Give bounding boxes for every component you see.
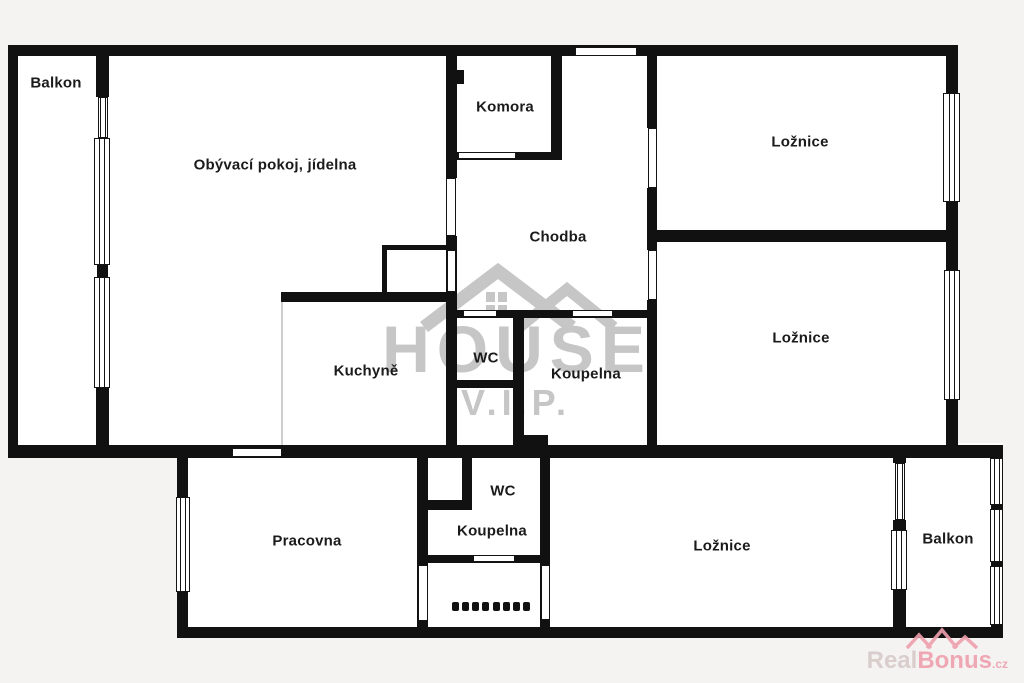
dash-icon xyxy=(482,602,489,611)
wall xyxy=(647,230,958,242)
door-opening xyxy=(418,565,428,621)
room-label-balkon-bottom: Balkon xyxy=(922,531,973,548)
window-symbol xyxy=(990,509,1003,562)
entrance-door xyxy=(575,47,637,56)
floor-plan: HOUSE V.I.P. xyxy=(0,0,1024,683)
room-label-komora: Komora xyxy=(476,99,534,116)
door-opening xyxy=(463,310,497,317)
wall xyxy=(427,500,472,510)
closet-wall xyxy=(382,245,448,250)
wall xyxy=(96,55,109,97)
balcony-window-symbol xyxy=(94,277,110,388)
logo-part-bonus: Bonus xyxy=(917,647,992,674)
dash-icon xyxy=(503,602,510,611)
wall xyxy=(96,388,109,445)
wall xyxy=(8,45,958,56)
logo-part-real: Real xyxy=(867,647,918,674)
realbonus-logo-text: RealBonus.cz xyxy=(867,647,1008,675)
window-symbol xyxy=(990,458,1003,505)
room-label-wc-lower: WC xyxy=(490,483,515,500)
dash-icon xyxy=(513,602,520,611)
room-label-koupelna-upper: Koupelna xyxy=(551,366,621,383)
balcony-door-symbol xyxy=(891,530,907,590)
wall xyxy=(455,70,464,84)
window-symbol xyxy=(990,566,1003,625)
room-label-wc-upper: WC xyxy=(473,350,498,367)
dash-icon xyxy=(462,602,469,611)
window-symbol xyxy=(943,93,960,202)
room-label-balkon-top: Balkon xyxy=(30,75,81,92)
door-opening xyxy=(232,448,282,457)
wall xyxy=(177,445,188,497)
door-opening xyxy=(458,152,516,159)
door-opening xyxy=(648,250,657,300)
wall xyxy=(281,292,457,302)
dash-icon xyxy=(472,602,479,611)
dashed-marker-row xyxy=(452,601,530,611)
wall xyxy=(8,45,18,458)
wall xyxy=(647,55,657,128)
wall xyxy=(513,310,524,445)
door-opening xyxy=(473,555,515,562)
wall xyxy=(524,435,548,445)
door-opening xyxy=(541,565,550,620)
wall xyxy=(446,302,457,445)
wall xyxy=(97,265,108,277)
room-label-loznice-mid: Ložnice xyxy=(772,330,829,347)
window-symbol xyxy=(944,270,960,400)
dash-icon xyxy=(523,602,530,611)
room-label-obyvaci-pokoj: Obývací pokoj, jídelna xyxy=(194,157,357,174)
door-opening xyxy=(572,310,613,317)
room-label-kuchyne: Kuchyně xyxy=(334,363,399,380)
wall xyxy=(446,160,457,178)
wall xyxy=(177,445,1003,458)
dash-icon xyxy=(493,602,500,611)
kitchen-open-boundary xyxy=(281,302,283,445)
balcony-window-symbol xyxy=(98,97,108,138)
wall xyxy=(457,380,513,388)
closet-opening xyxy=(447,250,456,292)
balcony-window-symbol xyxy=(895,463,905,520)
dash-icon xyxy=(452,602,459,611)
realbonus-roofs-icon xyxy=(906,627,978,649)
wall xyxy=(893,520,906,530)
room-label-chodba: Chodba xyxy=(529,229,586,246)
room-label-loznice-bottom: Ložnice xyxy=(693,538,750,555)
wall xyxy=(647,300,657,445)
window-symbol xyxy=(176,497,190,592)
logo-suffix-cz: .cz xyxy=(992,657,1008,671)
balcony-door-symbol xyxy=(94,138,110,265)
door-opening xyxy=(446,178,456,236)
realbonus-logo: RealBonus.cz xyxy=(860,627,1010,677)
room-label-pracovna: Pracovna xyxy=(272,533,341,550)
wall xyxy=(893,445,906,463)
wall xyxy=(551,55,562,160)
room-label-koupelna-lower: Koupelna xyxy=(457,523,527,540)
room-label-loznice-top: Ložnice xyxy=(771,134,828,151)
door-opening xyxy=(648,128,657,188)
